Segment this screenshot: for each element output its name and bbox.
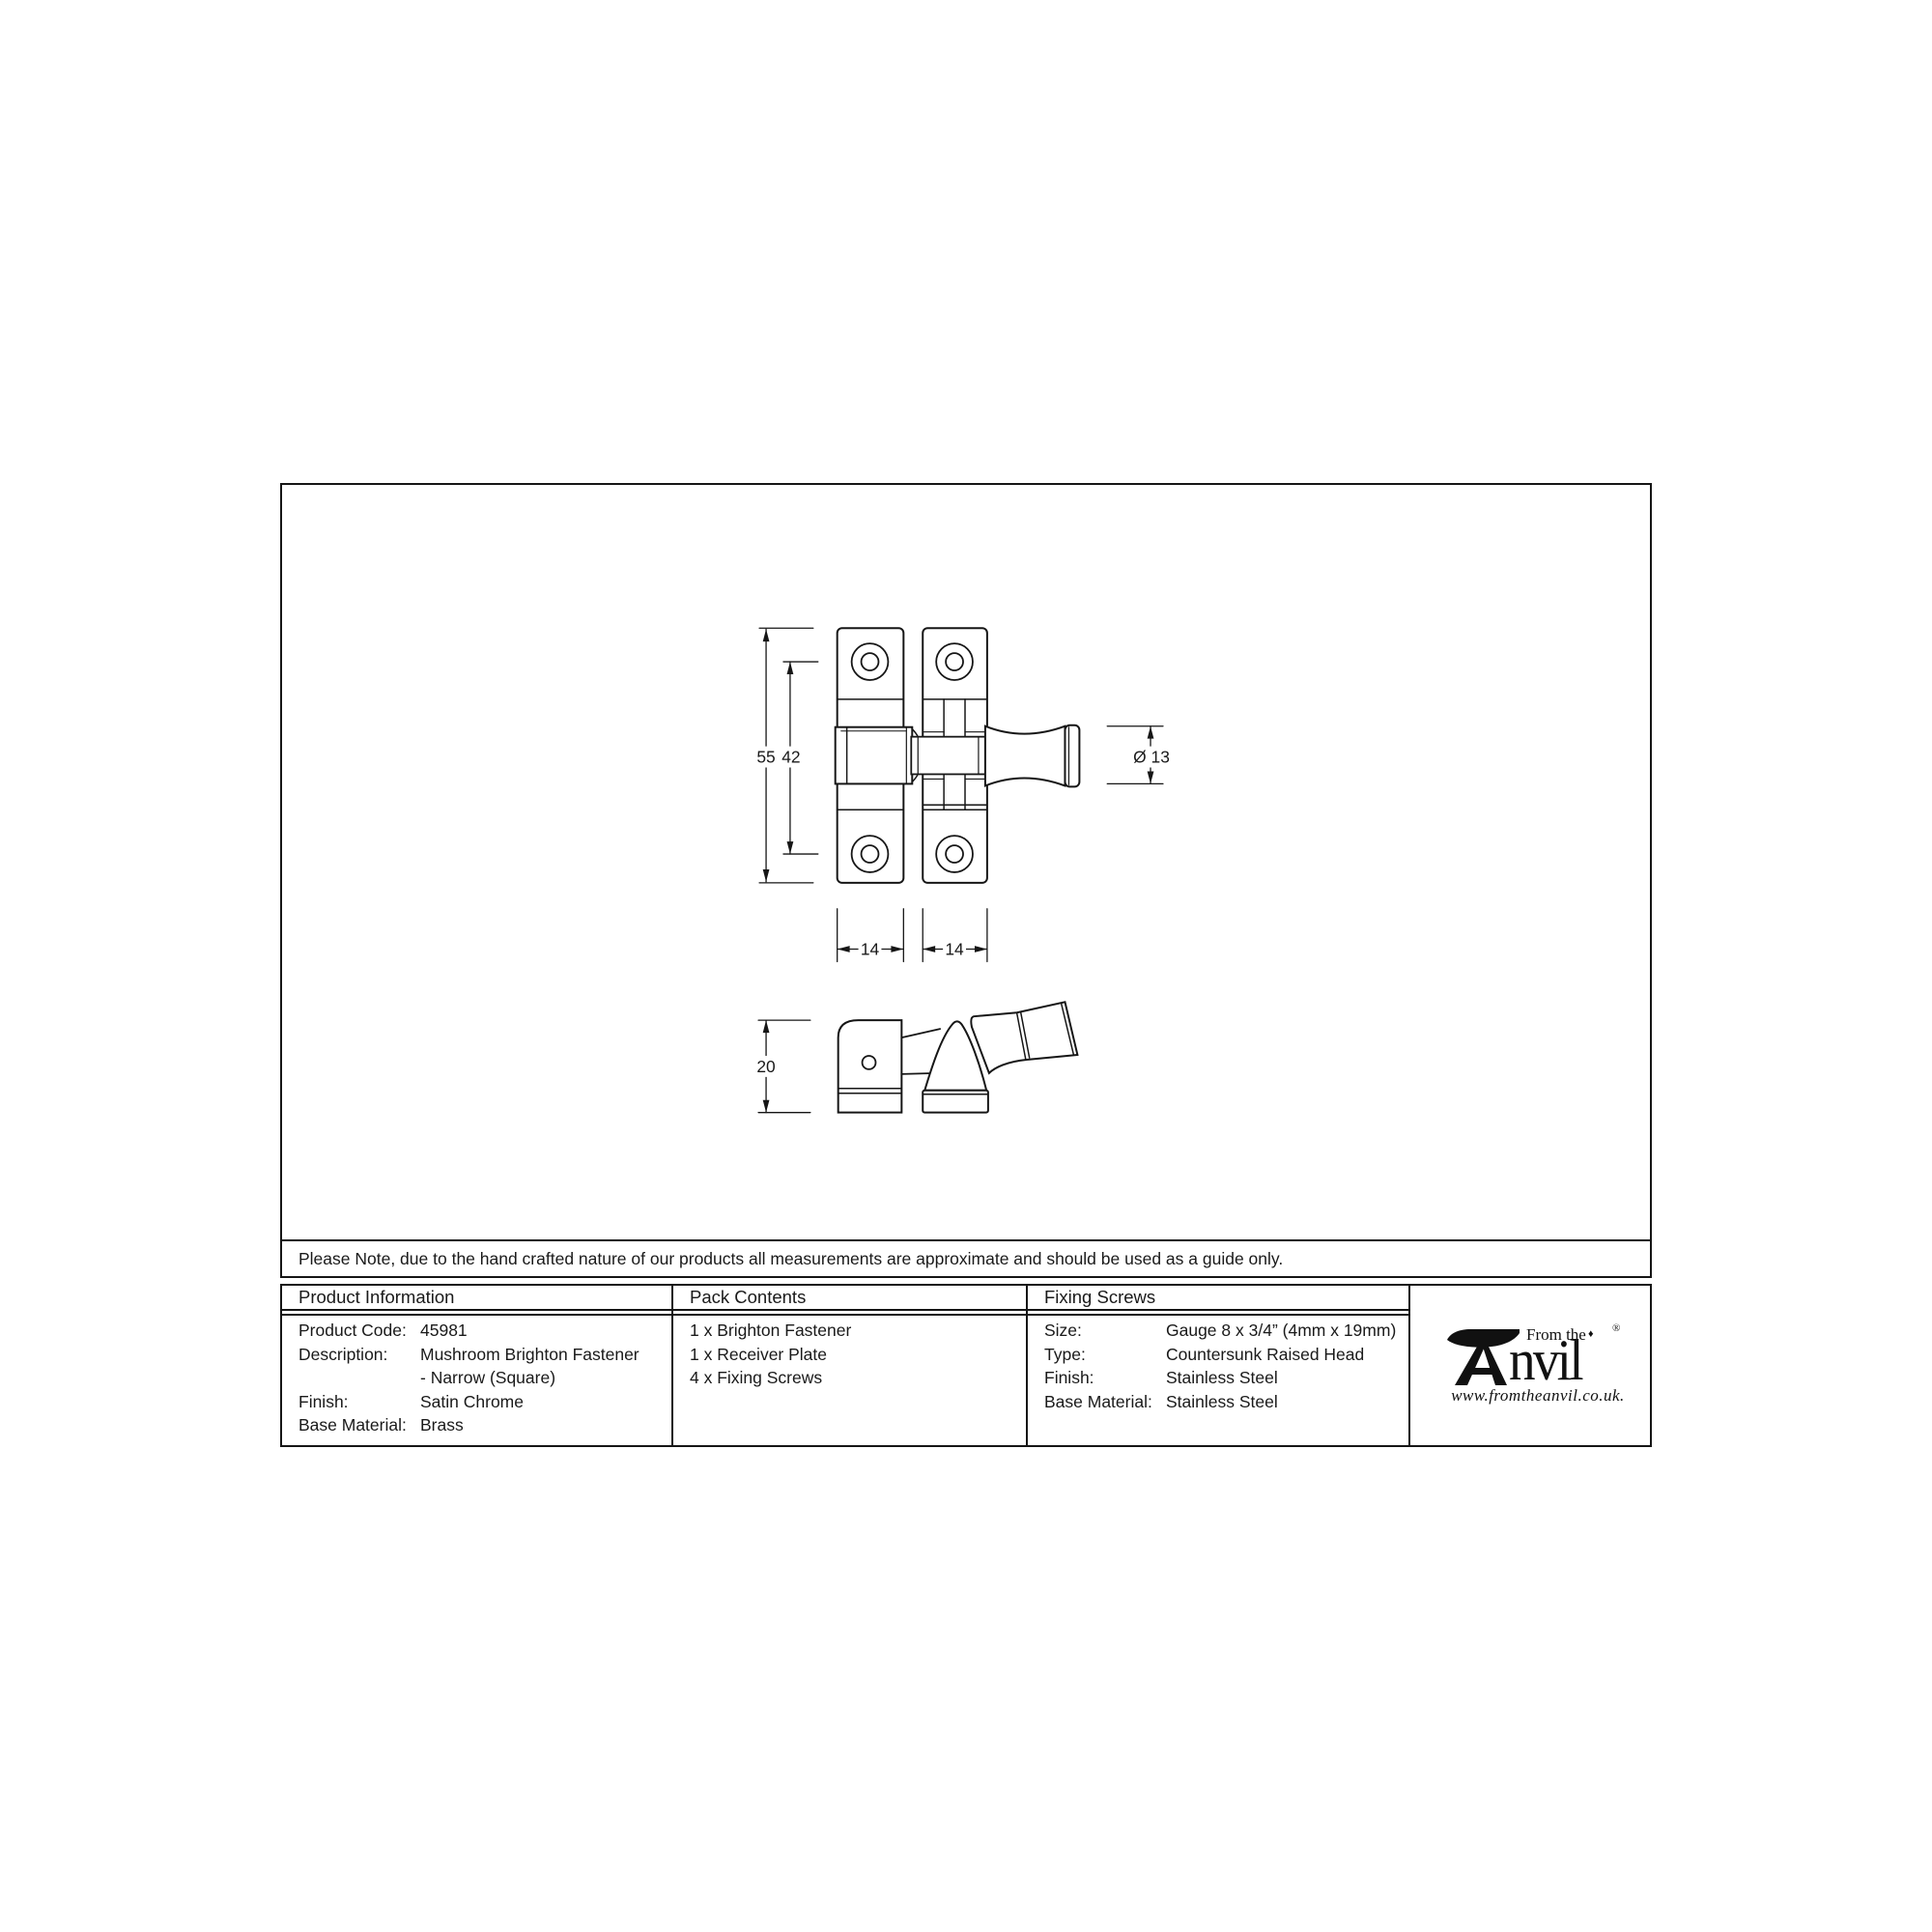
row-label: Size: <box>1044 1319 1166 1343</box>
row-label: Base Material: <box>1044 1390 1166 1414</box>
row-value: Brass <box>420 1413 671 1437</box>
row-value: 45981 <box>420 1319 671 1343</box>
pack-contents-column: Pack Contents 1 x Brighton Fastener 1 x … <box>673 1286 1028 1445</box>
product-information-header: Product Information <box>282 1286 671 1311</box>
front-view <box>836 628 1080 883</box>
logo-website: www.fromtheanvil.co.uk. <box>1432 1386 1644 1406</box>
row-value: - Narrow (Square) <box>420 1366 671 1390</box>
technical-drawing: 55 42 Ø 13 14 14 20 <box>282 485 1650 1239</box>
registered-mark: ® <box>1612 1322 1620 1334</box>
pack-contents-header: Pack Contents <box>673 1286 1026 1311</box>
table-row: Size: Gauge 8 x 3/4” (4mm x 19mm) <box>1044 1319 1408 1343</box>
table-row: Finish: Stainless Steel <box>1044 1366 1408 1390</box>
note-text: Please Note, due to the hand crafted nat… <box>282 1249 1283 1269</box>
row-value: Gauge 8 x 3/4” (4mm x 19mm) <box>1166 1319 1408 1343</box>
dim-hole-spacing: 42 <box>781 748 800 767</box>
logo-tagline: From the <box>1526 1325 1586 1345</box>
row-value: Stainless Steel <box>1166 1390 1408 1414</box>
row-value: Satin Chrome <box>420 1390 671 1414</box>
row-label <box>298 1366 420 1390</box>
spec-sheet: 55 42 Ø 13 14 14 20 Please Note, due to … <box>0 0 1932 1932</box>
fixing-screws-column: Fixing Screws Size: Gauge 8 x 3/4” (4mm … <box>1028 1286 1410 1445</box>
dim-side-depth: 20 <box>756 1057 775 1076</box>
knob-cap <box>1065 725 1079 787</box>
row-value: Stainless Steel <box>1166 1366 1408 1390</box>
row-value: Mushroom Brighton Fastener <box>420 1343 671 1367</box>
table-row: Base Material: Stainless Steel <box>1044 1390 1408 1414</box>
table-row: Description: Mushroom Brighton Fastener <box>298 1343 671 1367</box>
list-item: 1 x Receiver Plate <box>690 1343 1026 1367</box>
row-label: Product Code: <box>298 1319 420 1343</box>
side-view <box>838 1002 1078 1112</box>
row-label: Base Material: <box>298 1413 420 1437</box>
row-value: Countersunk Raised Head <box>1166 1343 1408 1367</box>
table-row: Product Code: 45981 <box>298 1319 671 1343</box>
row-label: Finish: <box>298 1390 420 1414</box>
list-item: 1 x Brighton Fastener <box>690 1319 1026 1343</box>
row-label: Finish: <box>1044 1366 1166 1390</box>
side-bracket <box>838 1020 902 1113</box>
dim-plate-width-right: 14 <box>945 940 964 959</box>
table-row: Type: Countersunk Raised Head <box>1044 1343 1408 1367</box>
row-label: Type: <box>1044 1343 1166 1367</box>
dim-knob-diameter: Ø 13 <box>1133 748 1170 767</box>
brand-logo-cell: nvil From the ♦ ® www.fromtheanvil.co.uk… <box>1410 1286 1650 1445</box>
anvil-logo: nvil From the ♦ ® www.fromtheanvil.co.uk… <box>1410 1286 1650 1445</box>
table-row: Base Material: Brass <box>298 1413 671 1437</box>
note-bar: Please Note, due to the hand crafted nat… <box>280 1241 1652 1278</box>
fixing-screws-header: Fixing Screws <box>1028 1286 1408 1311</box>
table-row: - Narrow (Square) <box>298 1366 671 1390</box>
list-item: 4 x Fixing Screws <box>690 1366 1026 1390</box>
dim-plate-width-left: 14 <box>861 940 880 959</box>
product-information-column: Product Information Product Code: 45981 … <box>282 1286 673 1445</box>
drawing-frame: 55 42 Ø 13 14 14 20 <box>280 483 1652 1241</box>
side-knob <box>971 1002 1077 1073</box>
spec-table: Product Information Product Code: 45981 … <box>280 1284 1652 1447</box>
dim-total-height: 55 <box>756 748 775 767</box>
table-row: Finish: Satin Chrome <box>298 1390 671 1414</box>
row-label: Description: <box>298 1343 420 1367</box>
diamond-icon: ♦ <box>1588 1328 1594 1340</box>
mushroom-knob <box>985 726 1065 786</box>
spindle-shaft <box>911 737 985 775</box>
